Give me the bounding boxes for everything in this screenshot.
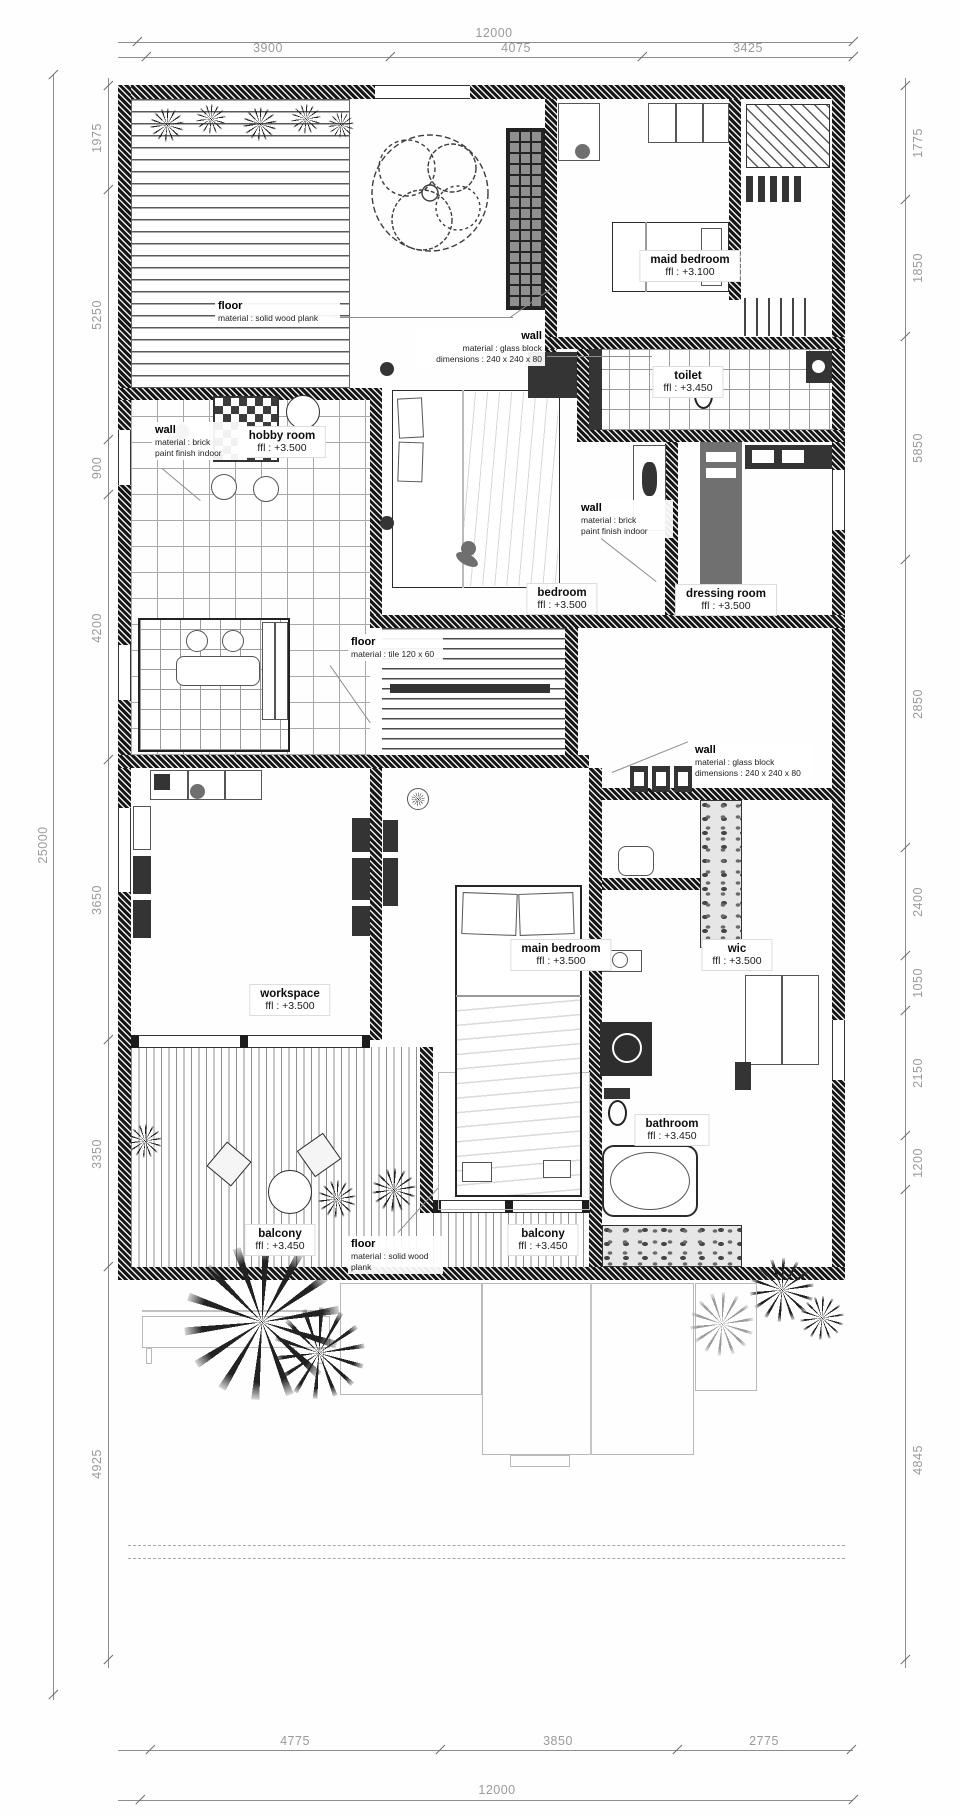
- room-label-wic: wic ffl : +3.500: [701, 939, 772, 971]
- shelf-item: [746, 176, 753, 202]
- closet-slot: [656, 772, 666, 786]
- stone-wall-band: [700, 800, 742, 948]
- room-label-hobby-room: hobby room ffl : +3.500: [238, 426, 326, 458]
- bedside-lamp: [380, 516, 394, 530]
- wall-bedroom-ne: [577, 349, 589, 442]
- bed-blanket: [464, 392, 558, 586]
- dimension-line-top-segments: [118, 57, 853, 58]
- wall-bedroom-bath: [589, 768, 602, 1267]
- room-name: hobby room: [249, 430, 315, 442]
- room-label-maid-bedroom: maid bedroom ffl : +3.100: [639, 250, 740, 282]
- gray-band-slot: [706, 468, 736, 478]
- wall-bedroom-balcony: [420, 1047, 433, 1213]
- vanity-basin: [612, 952, 628, 968]
- plant-icon: [690, 1292, 754, 1356]
- room-name: main bedroom: [521, 943, 600, 955]
- ground-floor-outline: [482, 1283, 694, 1455]
- leader-line: [601, 538, 657, 582]
- dim-label-left-overall: 25000: [36, 826, 50, 863]
- bed-pillow: [397, 442, 423, 483]
- person-figure: [190, 784, 205, 799]
- ground-floor-line: [590, 1283, 592, 1455]
- floor-books: [543, 1160, 571, 1178]
- window: [118, 430, 131, 485]
- washer-door: [612, 1033, 642, 1063]
- room-ffl: ffl : +3.500: [537, 599, 586, 611]
- wall-mid-horizontal: [370, 615, 845, 628]
- dim-label: 1050: [911, 968, 925, 998]
- room-ffl: ffl : +3.450: [255, 1240, 304, 1252]
- plant-icon: [150, 108, 184, 142]
- wardrobe-divider: [702, 103, 704, 143]
- glass-block-wall-strip: [506, 128, 545, 310]
- nook-chair: [222, 630, 244, 652]
- kitchenette-unit: [352, 906, 370, 936]
- room-name: balcony: [518, 1228, 567, 1240]
- dimension-line-bottom-segments: [118, 1750, 853, 1751]
- note-line: material : brick: [581, 515, 670, 526]
- room-ffl: ffl : +3.500: [521, 955, 600, 967]
- spiky-plant-icon: [273, 1307, 365, 1399]
- wall-maid-bottom: [545, 337, 845, 349]
- dimension-line-left-overall: [53, 75, 54, 1700]
- dim-label: 3900: [253, 41, 283, 55]
- dim-label: 2400: [911, 887, 925, 917]
- stair-rail: [390, 684, 550, 693]
- room-name: bedroom: [537, 587, 586, 599]
- toilet-tank: [604, 1088, 630, 1099]
- wall-workspace-bedroom: [370, 768, 382, 1040]
- dimension-line-left-segments: [108, 78, 109, 1668]
- nook-table: [176, 656, 260, 686]
- dim-label: 3650: [90, 885, 104, 915]
- dim-label: 3850: [543, 1734, 573, 1748]
- dim-label: 2775: [749, 1734, 779, 1748]
- window: [832, 1020, 845, 1080]
- nook-chair: [186, 630, 208, 652]
- dim-label: 1775: [911, 128, 925, 158]
- note-line: material : glass block: [695, 757, 809, 768]
- cabinet-divider: [274, 622, 276, 720]
- property-dashed-line: [128, 1558, 845, 1559]
- hobby-stool: [211, 474, 237, 500]
- shelf-item: [794, 176, 801, 202]
- room-ffl: ffl : +3.450: [645, 1130, 698, 1142]
- wall-toilet-bottom: [589, 430, 845, 442]
- wood-deck-floor-top: [131, 99, 350, 388]
- window: [375, 85, 470, 99]
- dim-label: 3425: [733, 41, 763, 55]
- workspace-cabinet: [133, 900, 151, 938]
- shelf-divider: [224, 770, 226, 800]
- plant-icon: [318, 1180, 356, 1218]
- plant-icon: [243, 107, 277, 141]
- note-title: floor: [351, 635, 440, 649]
- stair-steps: [744, 298, 808, 336]
- note-line: material : tile 120 x 60: [351, 649, 440, 660]
- floor-plan-sheet: maid bedroom ffl : +3.100 toilet ffl : +…: [0, 0, 960, 1816]
- person-figure: [575, 144, 590, 159]
- shelf-item: [758, 176, 765, 202]
- room-label-toilet: toilet ffl : +3.450: [652, 366, 723, 398]
- dim-label: 3350: [90, 1139, 104, 1169]
- note-line: material : brick: [155, 437, 244, 448]
- plant-icon: [328, 112, 354, 138]
- window-post: [240, 1035, 248, 1048]
- room-name: maid bedroom: [650, 254, 729, 266]
- closet-figure: [642, 462, 657, 496]
- plant-icon: [800, 1296, 844, 1340]
- dim-label: 1850: [911, 253, 925, 283]
- plant-icon: [372, 1168, 416, 1212]
- window: [118, 645, 131, 700]
- note-title: floor: [351, 1237, 440, 1251]
- dimension-line-right-segments: [905, 78, 906, 1668]
- leader-line: [333, 317, 513, 318]
- ground-step: [510, 1455, 570, 1467]
- room-label-dressing-room: dressing room ffl : +3.500: [675, 584, 777, 616]
- plant-icon: [128, 1124, 162, 1158]
- dim-label-top-overall: 12000: [475, 26, 512, 40]
- room-label-main-bedroom: main bedroom ffl : +3.500: [510, 939, 611, 971]
- bathtub-basin: [610, 1152, 690, 1210]
- plant-icon: [196, 104, 226, 134]
- workspace-cabinet: [133, 856, 151, 894]
- dim-label: 5250: [90, 300, 104, 330]
- note-floor-wood-bottom: floor material : solid wood plank: [348, 1236, 443, 1274]
- wardrobe-divider: [675, 103, 677, 143]
- room-name: balcony: [255, 1228, 304, 1240]
- note-title: wall: [581, 501, 670, 515]
- shelf-item: [770, 176, 777, 202]
- hobby-round-table: [286, 395, 320, 429]
- dim-label: 4925: [90, 1449, 104, 1479]
- balcony-table: [268, 1170, 312, 1214]
- outer-wall-top: [118, 85, 845, 99]
- shelf-item: [154, 774, 170, 790]
- room-ffl: ffl : +3.500: [686, 600, 766, 612]
- window-post: [362, 1035, 370, 1048]
- note-wall-glass-mid: wall material : glass block dimensions :…: [692, 742, 812, 780]
- closet-slot: [752, 450, 774, 463]
- wall-stairs-right: [565, 628, 578, 755]
- bedroom-fixture: [383, 820, 398, 852]
- shelf-divider: [187, 770, 189, 800]
- maid-wardrobe: [648, 103, 729, 143]
- room-label-balcony-center: balcony ffl : +3.450: [507, 1224, 578, 1256]
- kitchenette-unit: [352, 818, 370, 852]
- note-title: wall: [155, 423, 244, 437]
- wall-wic-top: [589, 788, 845, 800]
- room-name: wic: [712, 943, 761, 955]
- wall-wic-bath: [602, 878, 700, 890]
- room-name: dressing room: [686, 588, 766, 600]
- closet-slot: [634, 772, 644, 786]
- window-post: [131, 1035, 139, 1048]
- room-label-workspace: workspace ffl : +3.500: [249, 984, 330, 1016]
- note-title: floor: [218, 299, 337, 313]
- room-name: workspace: [260, 988, 319, 1000]
- dim-label: 5850: [911, 433, 925, 463]
- wardrobe-unit: [735, 1062, 751, 1090]
- dim-label: 4775: [280, 1734, 310, 1748]
- room-label-balcony-left: balcony ffl : +3.450: [244, 1224, 315, 1256]
- tree-icon: [352, 108, 507, 278]
- dim-label: 4200: [90, 613, 104, 643]
- shower-strip: [589, 349, 602, 430]
- window-band-workspace: [131, 1035, 370, 1048]
- gray-band-slot: [706, 452, 736, 462]
- room-label-bedroom: bedroom ffl : +3.500: [526, 583, 597, 615]
- note-line: paint finish indoor: [155, 448, 244, 459]
- dim-label: 4845: [911, 1445, 925, 1475]
- wall-lower-horizontal: [118, 755, 589, 768]
- note-floor-tile: floor material : tile 120 x 60: [348, 634, 443, 661]
- bed-pillow: [461, 892, 517, 936]
- dim-label: 1200: [911, 1148, 925, 1178]
- note-line: material : solid wood plank: [218, 313, 337, 324]
- plant-icon: [411, 792, 425, 806]
- dim-label: 4075: [501, 41, 531, 55]
- property-dashed-line: [128, 1545, 845, 1546]
- note-title: wall: [421, 329, 542, 343]
- dim-label: 900: [90, 457, 104, 479]
- workspace-cabinet: [133, 806, 151, 850]
- note-line: paint finish indoor: [581, 526, 670, 537]
- bedside-lamp: [380, 362, 394, 376]
- wardrobe-divider: [781, 975, 783, 1065]
- note-line: dimensions : 240 x 240 x 80: [695, 768, 809, 779]
- note-line: dimensions : 240 x 240 x 80: [421, 354, 542, 365]
- outer-wall-right: [832, 85, 845, 1280]
- note-title: wall: [695, 743, 809, 757]
- closet-slot: [782, 450, 804, 463]
- shelf-item: [782, 176, 789, 202]
- window: [118, 808, 131, 892]
- note-wall-glass-top: wall material : glass block dimensions :…: [418, 328, 545, 366]
- dim-label: 2850: [911, 689, 925, 719]
- bed-pillow: [518, 892, 574, 936]
- room-ffl: ffl : +3.100: [650, 266, 729, 278]
- mirror-cabinet: [746, 104, 830, 168]
- room-ffl: ffl : +3.450: [518, 1240, 567, 1252]
- note-wall-brick-hobby: wall material : brick paint finish indoo…: [152, 422, 247, 460]
- note-wall-brick-bedroom: wall material : brick paint finish indoo…: [578, 500, 673, 538]
- room-ffl: ffl : +3.500: [712, 955, 761, 967]
- room-label-bathroom: bathroom ffl : +3.450: [634, 1114, 709, 1146]
- window: [832, 470, 845, 530]
- room-ffl: ffl : +3.500: [249, 442, 315, 454]
- closet-slot: [678, 772, 688, 786]
- room-name: toilet: [663, 370, 712, 382]
- dim-label: 1975: [90, 123, 104, 153]
- leader-line: [547, 356, 652, 357]
- wall-hobby-bedroom: [370, 388, 382, 615]
- toilet-bowl-icon: [608, 1100, 627, 1126]
- room-name: bathroom: [645, 1118, 698, 1130]
- room-ffl: ffl : +3.500: [260, 1000, 319, 1012]
- dim-label-bottom-overall: 12000: [478, 1783, 515, 1797]
- sink-basin: [812, 360, 825, 373]
- bench-leg: [146, 1348, 152, 1364]
- floor-books: [462, 1162, 492, 1182]
- stone-floor-band: [602, 1225, 742, 1267]
- note-line: material : glass block: [421, 343, 542, 354]
- dimension-line-bottom-overall: [118, 1800, 853, 1801]
- bedroom-fixture: [383, 858, 398, 906]
- note-line: material : solid wood plank: [351, 1251, 440, 1273]
- kitchenette-unit: [352, 858, 370, 900]
- note-floor-wood-top: floor material : solid wood plank: [215, 298, 340, 325]
- hobby-stool: [253, 476, 279, 502]
- wic-chair: [618, 846, 654, 876]
- room-ffl: ffl : +3.450: [663, 382, 712, 394]
- bed-pillow: [397, 397, 424, 438]
- plant-icon: [291, 104, 321, 134]
- dim-label: 2150: [911, 1058, 925, 1088]
